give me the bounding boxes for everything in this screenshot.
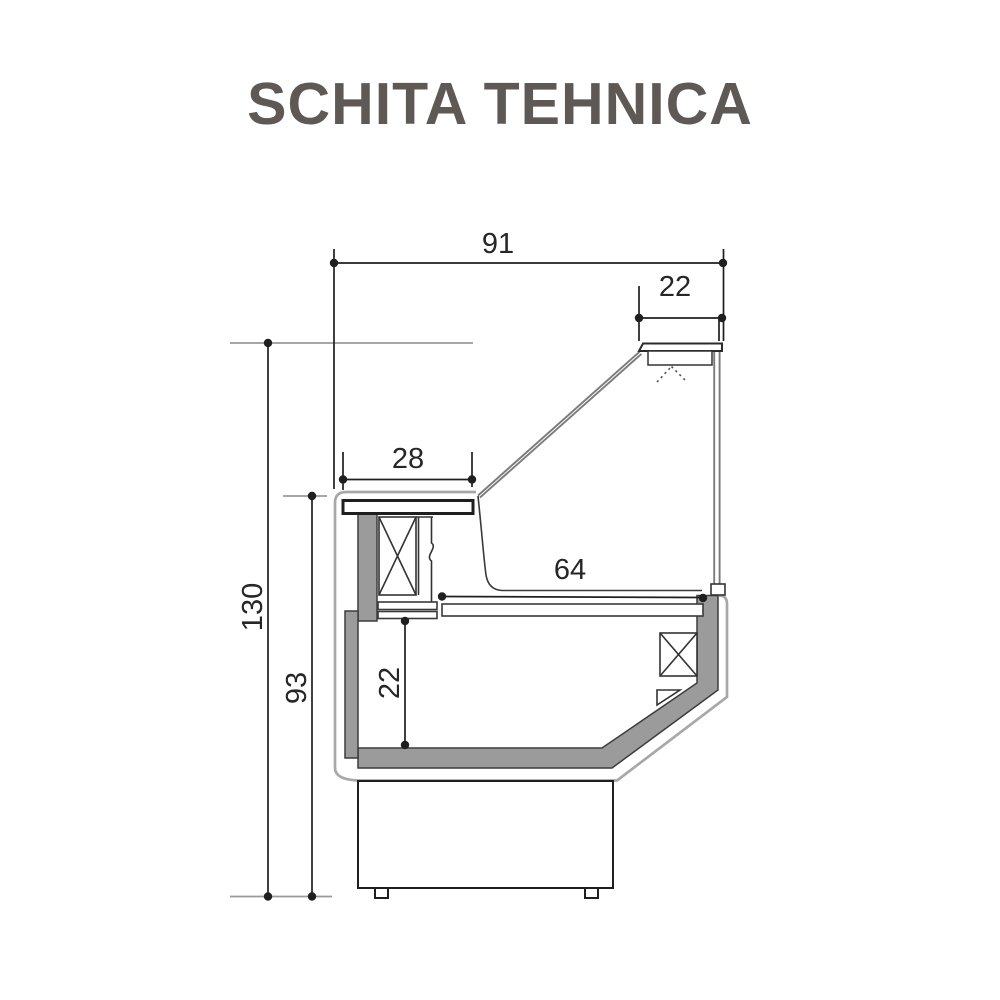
bottom-and-right-insulation-band — [358, 596, 718, 769]
top-lid — [639, 344, 722, 383]
rear-glass-foot — [711, 584, 725, 595]
technical-drawing: 91 22 28 64 130 — [0, 0, 1000, 1000]
break-squiggle-line — [429, 517, 433, 602]
dim-counter-width-28: 28 — [339, 443, 476, 490]
dim-91-dot-left — [330, 259, 338, 267]
dim-deck-width-64: 64 — [438, 554, 707, 602]
dim-overall-height-130: 130 — [237, 339, 272, 901]
dim-22inner-dot-bottom — [401, 741, 409, 749]
dim-22top-dot-right — [718, 314, 726, 322]
dim-64-dot-left — [438, 592, 446, 600]
dim-93-label: 93 — [281, 672, 313, 704]
display-deck-bar — [442, 604, 703, 616]
counter-top — [343, 501, 473, 514]
dim-93-dot-top — [308, 492, 316, 500]
front-glass-outer-line — [478, 352, 640, 496]
dim-93-dot-bottom — [308, 892, 316, 900]
dim-worktop-height-93: 93 — [281, 492, 316, 901]
dim-64-line — [442, 597, 703, 598]
shelf-left-bar-upper — [378, 602, 437, 610]
dim-22inner-label: 22 — [374, 667, 406, 699]
dim-130-dot-bottom — [264, 892, 272, 900]
dim-22inner-dot-top — [401, 617, 409, 625]
dim-22top-label: 22 — [659, 271, 691, 303]
dim-130-label: 130 — [237, 583, 269, 631]
dim-well-height-22: 22 — [374, 617, 409, 749]
base-housing — [358, 781, 613, 888]
dim-91-label: 91 — [482, 228, 514, 260]
front-glass — [478, 352, 641, 498]
front-glass-inner-line — [480, 354, 642, 498]
front-panel-upper — [358, 513, 377, 621]
lid-profile — [639, 344, 722, 352]
lamp-housing — [648, 351, 712, 365]
shelf-left-bar-lower — [378, 612, 437, 619]
dim-28-dot-left — [339, 475, 347, 483]
base-unit — [358, 781, 613, 898]
dim-130-dot-top — [264, 339, 272, 347]
base-foot-left — [375, 888, 388, 898]
dim-top-depth-22: 22 — [635, 271, 726, 341]
light-beam-dashed-lines — [657, 367, 687, 383]
dim-91-dot-right — [719, 259, 727, 267]
base-foot-right — [585, 888, 598, 898]
inner-front-wall-curve — [478, 496, 702, 591]
left-evaporator-section — [379, 517, 433, 602]
dim-64-label: 64 — [554, 554, 586, 586]
dim-22top-dot-left — [635, 314, 643, 322]
front-panel-lower — [345, 611, 358, 758]
rear-glass — [711, 351, 725, 595]
dim-28-label: 28 — [392, 443, 424, 475]
dim-28-dot-right — [468, 475, 476, 483]
dim-64-dot-right — [699, 594, 707, 602]
counter-top-bar — [343, 501, 473, 514]
